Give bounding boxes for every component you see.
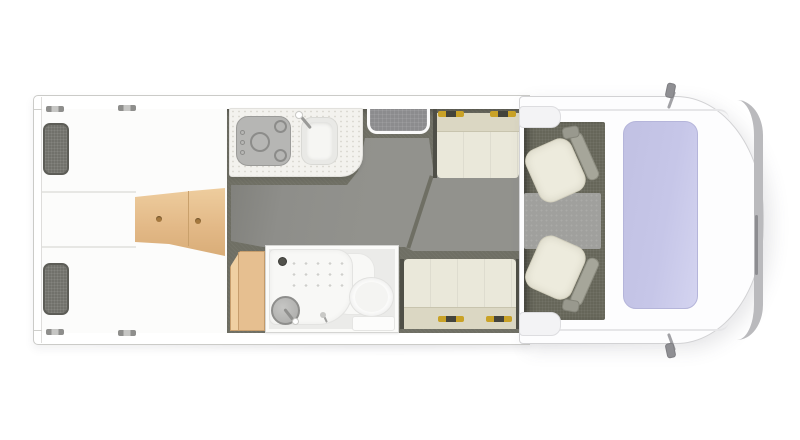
hob xyxy=(236,116,291,166)
windshield xyxy=(623,121,698,309)
step-knob xyxy=(156,216,162,222)
bed-steps-seam xyxy=(188,191,189,246)
burner-large xyxy=(250,132,270,152)
faucet-base xyxy=(295,111,303,119)
seatbelt-bracket-icon xyxy=(486,316,512,322)
pillow-top xyxy=(43,123,69,175)
hob-knob xyxy=(240,130,245,135)
seatbelt-bracket-icon xyxy=(438,316,464,322)
shower-antislip-dots xyxy=(288,258,348,292)
front-bumper xyxy=(737,100,763,340)
motorhome-body xyxy=(33,95,530,345)
motorhome-floorplan xyxy=(0,0,800,440)
toilet-lid xyxy=(355,282,388,312)
side-mirror-top-icon xyxy=(665,82,677,99)
pillow-bottom xyxy=(43,263,69,315)
step-knob xyxy=(195,218,201,224)
basin-spout xyxy=(292,318,299,325)
seatbelt-bracket-icon xyxy=(490,111,516,117)
bed-divider-line xyxy=(42,191,136,193)
dinette-bench-front xyxy=(400,259,520,329)
toilet-pedestal xyxy=(352,316,395,331)
burner-small xyxy=(274,149,287,162)
entry-step-mat xyxy=(367,109,430,134)
seatbelt-bracket-icon xyxy=(438,111,464,117)
body-hinge-icon xyxy=(118,105,136,111)
body-hinge-icon xyxy=(118,330,136,336)
wardrobe xyxy=(230,251,265,331)
small-tap-base xyxy=(320,312,326,318)
kitchen-counter xyxy=(229,108,363,177)
hob-knob xyxy=(240,140,245,145)
body-hinge-icon xyxy=(46,106,64,112)
driver-cab xyxy=(519,96,764,344)
bumper-trim xyxy=(755,215,758,275)
shower-drain xyxy=(278,257,287,266)
cab-step-bottom xyxy=(519,312,561,336)
bench-cushion xyxy=(404,259,516,307)
bathroom xyxy=(265,245,399,333)
bench-cushion xyxy=(437,132,519,178)
dinette-bench-rear xyxy=(433,109,523,178)
wardrobe-seam xyxy=(238,252,239,330)
hob-knob xyxy=(240,150,245,155)
burner-small xyxy=(274,120,287,133)
bed-divider-line xyxy=(42,246,136,248)
body-hinge-icon xyxy=(46,329,64,335)
cab-step-top xyxy=(519,106,561,128)
